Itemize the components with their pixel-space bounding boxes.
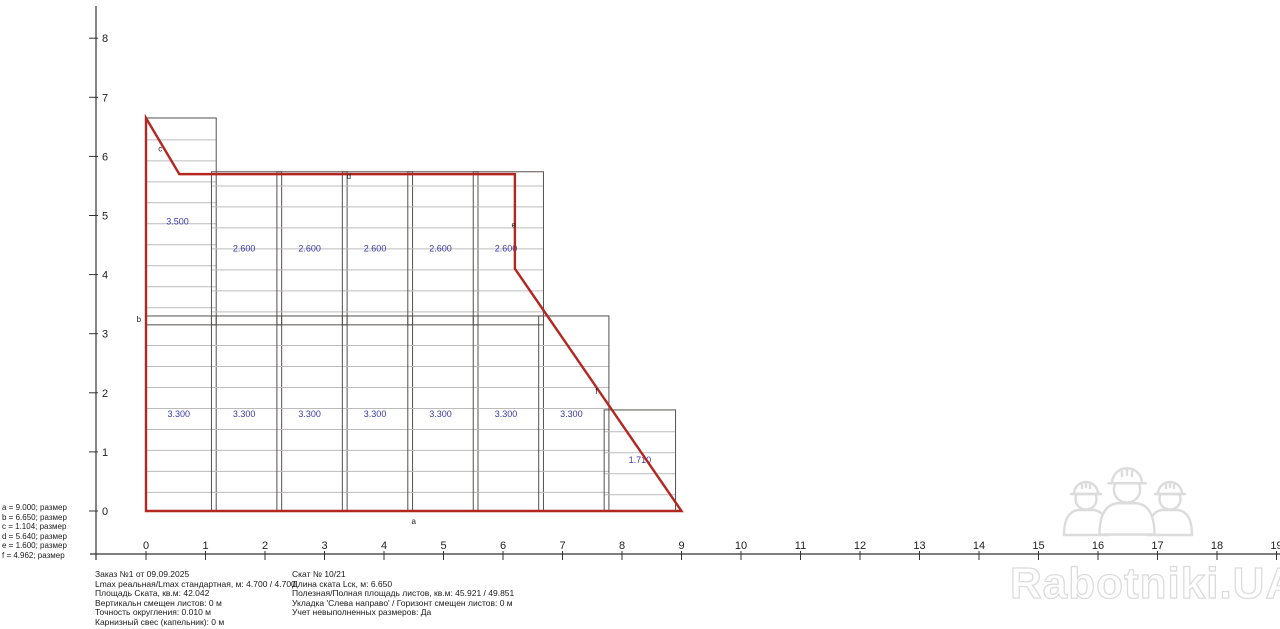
sheet: 2.600 — [342, 172, 412, 325]
x-axis-tick-label: 8 — [619, 540, 625, 552]
sheet: 3.300 — [146, 316, 216, 511]
info-line: Учет невыполненных размеров: Да — [292, 608, 514, 618]
x-axis-tick-label: 4 — [381, 540, 387, 552]
worker-hardhat-icon — [1100, 468, 1155, 534]
y-axis-tick-label: 7 — [102, 92, 108, 104]
info-line: Карнизный свес (капельник): 0 м — [95, 618, 296, 628]
x-axis-tick-label: 11 — [795, 540, 806, 552]
edge-dimensions-legend: a = 9.000; размерb = 6.650; размерc = 1.… — [2, 503, 67, 561]
sheet: 3.300 — [342, 316, 412, 511]
y-axis-tick-label: 8 — [102, 33, 108, 45]
legend-line: c = 1.104; размер — [2, 522, 67, 532]
y-axis-tick-label: 1 — [102, 447, 108, 459]
sheet-length-label: 3.300 — [233, 409, 256, 419]
watermark: Rabotniki.UA — [1010, 468, 1280, 608]
sheet-length-label: 2.600 — [298, 244, 321, 254]
roof-layout-drawing: 0123456789101112131415161718190123456783… — [0, 0, 1280, 629]
edge-label-c: c — [158, 145, 162, 154]
sheet: 3.300 — [539, 316, 609, 511]
sheet-length-label: 3.300 — [495, 409, 518, 419]
x-axis-tick-label: 0 — [143, 540, 149, 552]
legend-line: e = 1.600; размер — [2, 541, 67, 551]
edge-label-d: d — [347, 172, 351, 181]
sheet-length-label: 3.300 — [429, 409, 452, 419]
x-axis-tick-label: 17 — [1151, 540, 1163, 552]
edge-letter-labels: abcdef — [137, 145, 599, 526]
sheet-length-label: 2.600 — [233, 244, 256, 254]
roof-outline — [146, 118, 682, 511]
y-axis-tick-label: 5 — [102, 211, 108, 223]
x-axis-tick-label: 12 — [854, 540, 866, 552]
x-axis-tick-label: 6 — [500, 540, 506, 552]
sheet-length-label: 3.500 — [166, 216, 189, 226]
slope-info-block: Скат № 10/21Длина ската Lск, м: 6.650Пол… — [292, 570, 514, 618]
sheet: 2.600 — [408, 172, 478, 325]
sheet-length-label: 3.300 — [560, 409, 583, 419]
order-info-block: Заказ №1 от 09.09.2025Lmax реальная/Lmax… — [95, 570, 296, 628]
sheet: 1.710 — [604, 410, 675, 511]
x-axis-tick-label: 9 — [678, 540, 684, 552]
y-axis-tick-label: 2 — [102, 388, 108, 400]
x-axis-tick-label: 5 — [440, 540, 446, 552]
legend-line: d = 5.640; размер — [2, 532, 67, 542]
x-axis-tick-label: 1 — [202, 540, 208, 552]
sheet-length-label: 3.300 — [298, 409, 321, 419]
x-axis-tick-label: 10 — [735, 540, 747, 552]
sheet: 2.600 — [473, 172, 543, 325]
sheet: 3.300 — [408, 316, 478, 511]
axes: 012345678910111213141516171819012345678 — [89, 6, 1280, 560]
sheet-length-label: 2.600 — [364, 244, 387, 254]
sheet: 3.300 — [277, 316, 347, 511]
sheet-grid: 3.5002.6002.6002.6002.6002.6003.3003.300… — [146, 118, 676, 511]
x-axis-tick-label: 19 — [1270, 540, 1280, 552]
sheet-length-label: 3.300 — [167, 409, 190, 419]
sheet: 3.500 — [146, 118, 216, 325]
x-axis-tick-label: 18 — [1211, 540, 1223, 552]
x-axis-tick-label: 3 — [321, 540, 327, 552]
plot-area: 0123456789101112131415161718190123456783… — [0, 0, 1280, 629]
y-axis-tick-label: 6 — [102, 151, 108, 163]
sheet: 3.300 — [473, 316, 543, 511]
legend-line: b = 6.650; размер — [2, 513, 67, 523]
edge-label-e: e — [511, 220, 516, 229]
edge-label-b: b — [137, 315, 142, 324]
sheet-length-label: 2.600 — [429, 244, 452, 254]
x-axis-tick-label: 7 — [559, 540, 565, 552]
sheet: 2.600 — [277, 172, 347, 325]
legend-line: a = 9.000; размер — [2, 503, 67, 513]
y-axis-tick-label: 4 — [102, 270, 108, 282]
watermark-brand-text: Rabotniki.UA — [1010, 559, 1280, 608]
legend-line: f = 4.962; размер — [2, 551, 67, 561]
y-axis-tick-label: 3 — [102, 329, 108, 341]
x-axis-tick-label: 14 — [973, 540, 985, 552]
x-axis-tick-label: 2 — [262, 540, 268, 552]
x-axis-tick-label: 13 — [913, 540, 925, 552]
x-axis-tick-label: 15 — [1032, 540, 1044, 552]
sheet: 3.300 — [211, 316, 281, 511]
sheet: 2.600 — [211, 172, 281, 325]
y-axis-tick-label: 0 — [102, 506, 108, 518]
sheet-length-label: 3.300 — [364, 409, 387, 419]
x-axis-tick-label: 16 — [1092, 540, 1104, 552]
edge-label-a: a — [412, 517, 417, 526]
